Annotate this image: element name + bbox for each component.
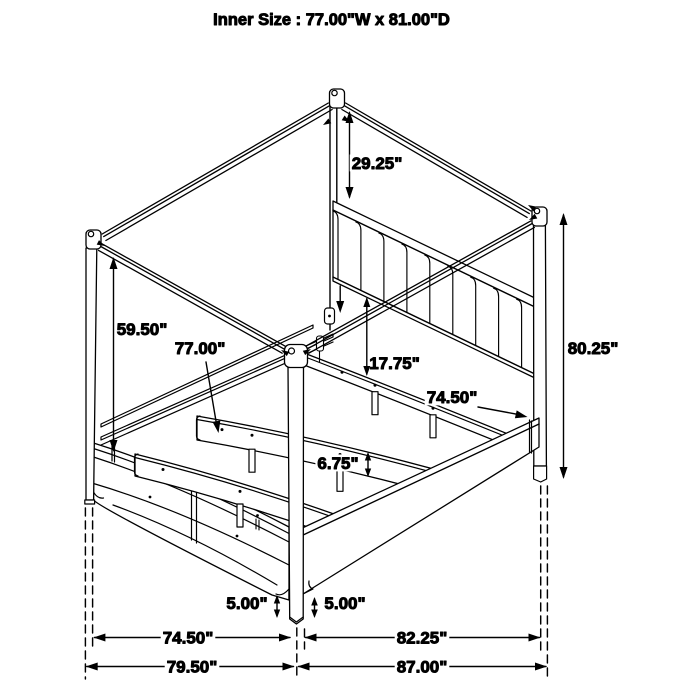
svg-text:5.00": 5.00": [226, 594, 267, 613]
svg-text:77.00": 77.00": [175, 339, 226, 358]
svg-text:Inner Size : 77.00"W x 81.00"D: Inner Size : 77.00"W x 81.00"D: [213, 11, 450, 29]
svg-text:17.75": 17.75": [369, 354, 420, 373]
svg-text:59.50": 59.50": [117, 320, 168, 339]
svg-text:80.25": 80.25": [568, 339, 619, 358]
svg-text:79.50": 79.50": [167, 658, 218, 677]
svg-text:29.25": 29.25": [352, 154, 403, 173]
svg-text:74.50": 74.50": [163, 629, 214, 648]
svg-text:6.75": 6.75": [317, 454, 358, 473]
svg-text:74.50": 74.50": [427, 388, 478, 407]
svg-text:82.25": 82.25": [397, 629, 448, 648]
svg-text:5.00": 5.00": [324, 594, 365, 613]
svg-text:87.00": 87.00": [397, 658, 448, 677]
